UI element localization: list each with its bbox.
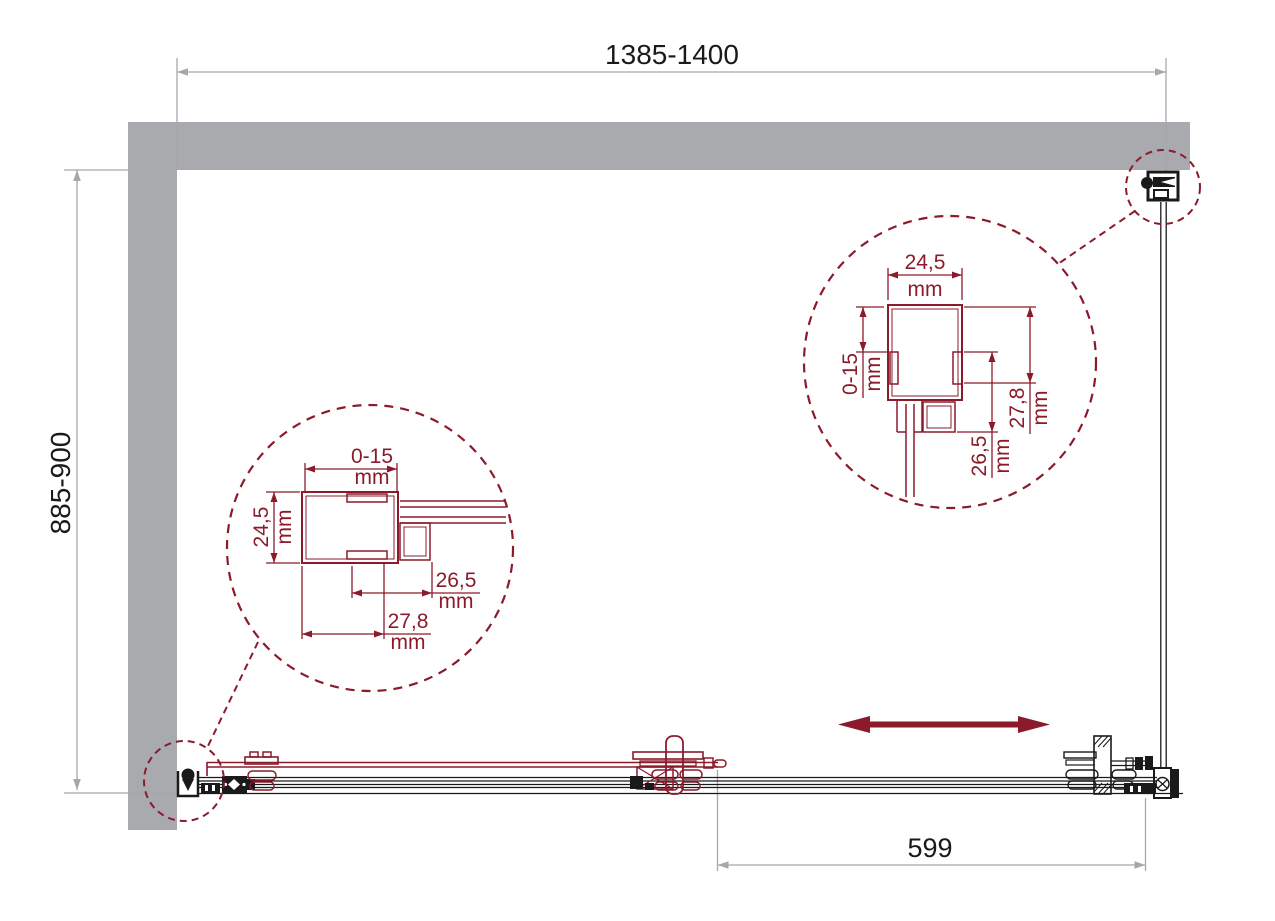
drawing-canvas: 1385-1400 885-900 599 <box>0 0 1275 921</box>
svg-text:26,5: 26,5 <box>968 436 991 477</box>
detail-right-dim-left: 0-15 mm <box>839 307 888 398</box>
svg-text:27,8: 27,8 <box>1006 388 1029 429</box>
svg-text:0-15: 0-15 <box>351 445 393 468</box>
center-roller-carriage <box>630 736 726 794</box>
svg-text:mm: mm <box>355 466 390 489</box>
callout-leader-top-right <box>1058 211 1135 264</box>
detail-left-dim-top: 0-15 mm <box>305 445 397 493</box>
wall-top <box>128 122 1190 170</box>
corner-wall-profile <box>1141 172 1178 200</box>
svg-text:0-15: 0-15 <box>839 353 862 395</box>
wall-left <box>128 170 177 830</box>
side-panel-glass <box>1161 202 1166 768</box>
shower-enclosure-technical-drawing: 1385-1400 885-900 599 <box>0 0 1275 921</box>
svg-text:27,8: 27,8 <box>388 610 429 633</box>
detail-left-profile <box>302 492 506 563</box>
left-wall-profile-assembly <box>178 752 278 796</box>
svg-text:24,5: 24,5 <box>905 251 946 274</box>
width-dimension-label: 1385-1400 <box>605 39 739 70</box>
detail-right-profile <box>888 305 962 497</box>
svg-text:mm: mm <box>862 357 885 392</box>
slide-direction-arrow <box>838 716 1050 733</box>
detail-left-dim-left: 24,5 mm <box>250 492 300 563</box>
svg-text:mm: mm <box>991 439 1014 474</box>
svg-text:26,5: 26,5 <box>436 569 477 592</box>
callout-leader-bottom-left <box>208 642 258 746</box>
right-assembly <box>1064 736 1179 798</box>
detail-view-left: 0-15 mm 24,5 mm 26,5 mm 27,8 mm <box>227 405 513 691</box>
bottom-track-rails <box>177 778 1183 794</box>
profile-bolt <box>1141 177 1153 189</box>
detail-left-dim-bottom: 27,8 mm <box>302 562 431 654</box>
svg-text:24,5: 24,5 <box>250 507 273 548</box>
svg-text:mm: mm <box>273 510 296 545</box>
detail-left-dim-right: 26,5 mm <box>352 562 480 613</box>
svg-text:mm: mm <box>439 590 474 613</box>
depth-dimension-label: 885-900 <box>45 432 76 535</box>
detail-right-dim-right: 27,8 mm <box>964 307 1052 434</box>
svg-text:mm: mm <box>391 631 426 654</box>
detail-right-dim-top: 24,5 mm <box>888 251 962 301</box>
svg-text:mm: mm <box>1029 391 1052 426</box>
door-opening-dimension: 599 <box>718 770 1146 871</box>
svg-text:mm: mm <box>908 278 943 301</box>
detail-view-right: 24,5 mm 0-15 mm 27,8 mm 26,5 mm <box>804 216 1096 508</box>
door-opening-label: 599 <box>907 833 952 863</box>
